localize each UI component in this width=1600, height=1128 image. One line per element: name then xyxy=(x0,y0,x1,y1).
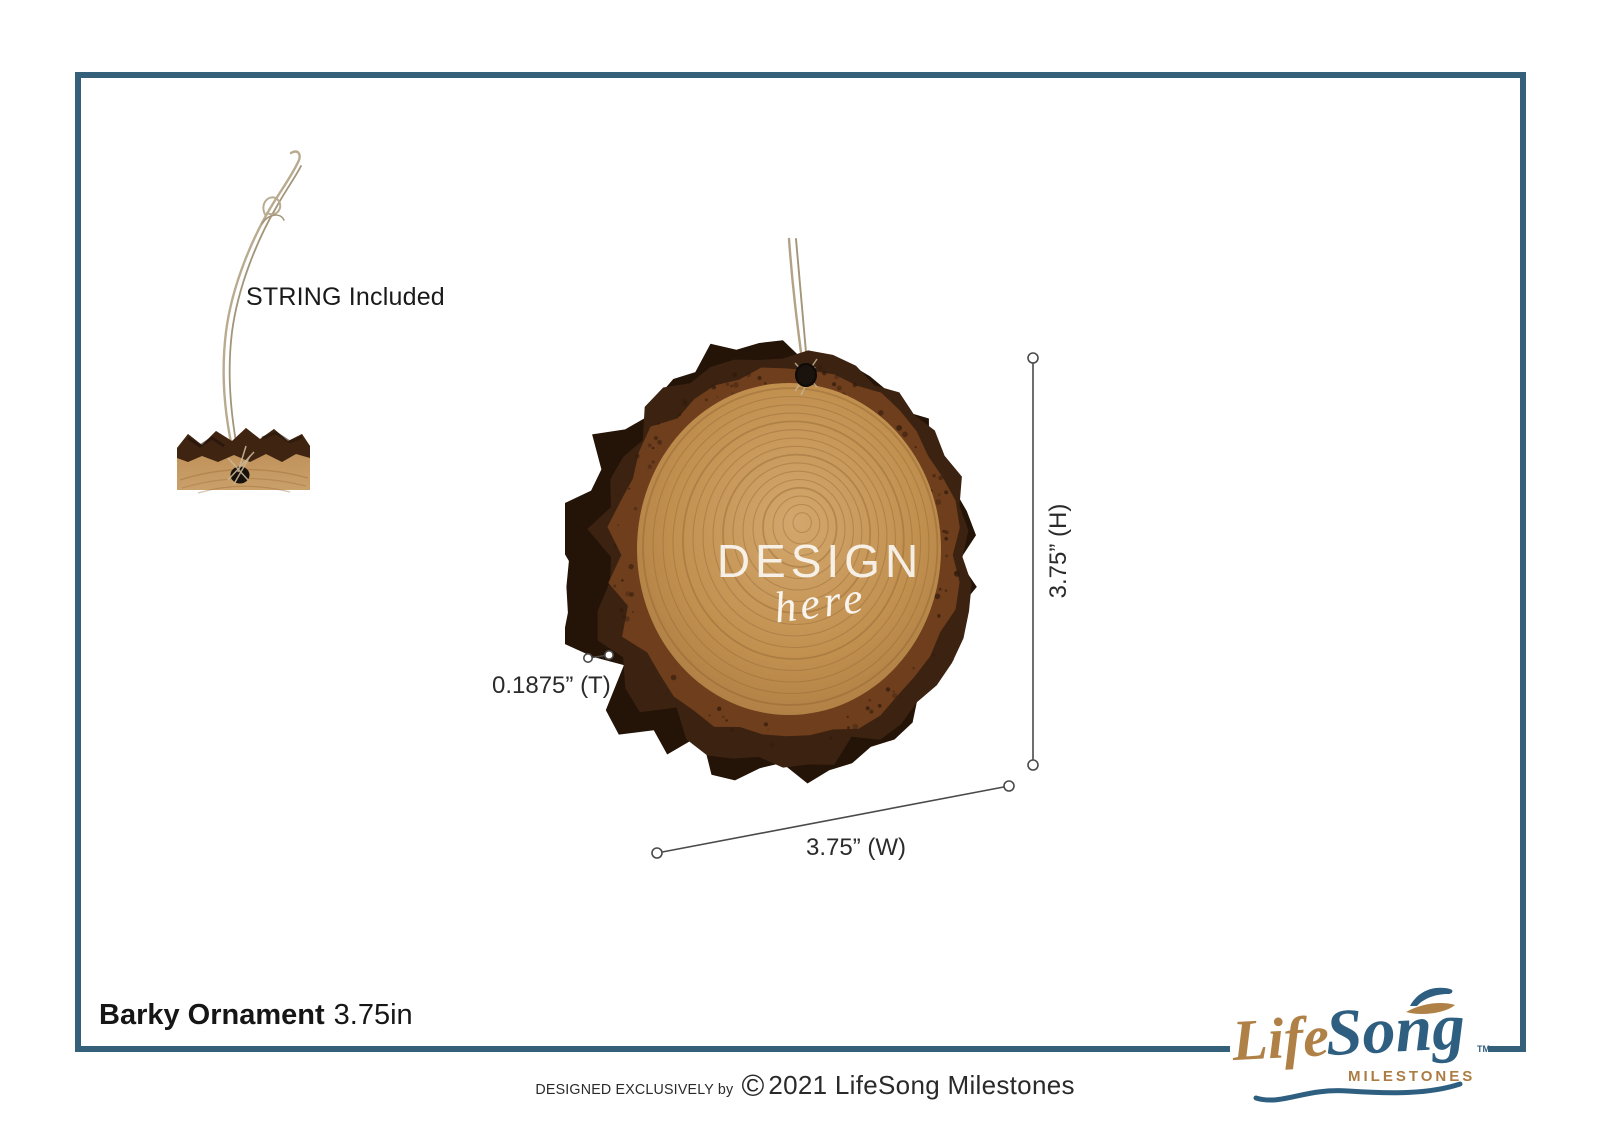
height-dimension-label: 3.75” (H) xyxy=(1045,504,1073,599)
width-dimension-label: 3.75” (W) xyxy=(806,834,906,862)
ornament-product-image: DESIGN here xyxy=(565,225,995,785)
product-size: 3.75in xyxy=(334,999,413,1031)
string-included-label: STRING Included xyxy=(246,283,445,312)
lifesong-logo: LifeSong TM MILESTONES xyxy=(1196,956,1496,1126)
copyright-owner-text: 2021 LifeSong Milestones xyxy=(768,1070,1074,1101)
logo-wordmark: LifeSong xyxy=(1230,994,1466,1072)
product-name: Barky Ornament xyxy=(99,999,325,1031)
product-diagram-page: STRING Included xyxy=(0,0,1600,1128)
product-title: Barky Ornament3.75in xyxy=(99,999,413,1032)
logo-swoosh-underline xyxy=(1252,1078,1464,1108)
designed-exclusively-text: DESIGNED EXCLUSIVELY by xyxy=(536,1081,734,1098)
wood-slice-top-edge xyxy=(177,428,310,493)
trademark-symbol: TM xyxy=(1477,1044,1490,1054)
logo-word-life: Life xyxy=(1231,1003,1331,1073)
string-sample-image xyxy=(150,128,320,498)
thickness-dimension-label: 0.1875” (T) xyxy=(492,672,611,700)
logo-word-song: Song xyxy=(1324,990,1467,1070)
